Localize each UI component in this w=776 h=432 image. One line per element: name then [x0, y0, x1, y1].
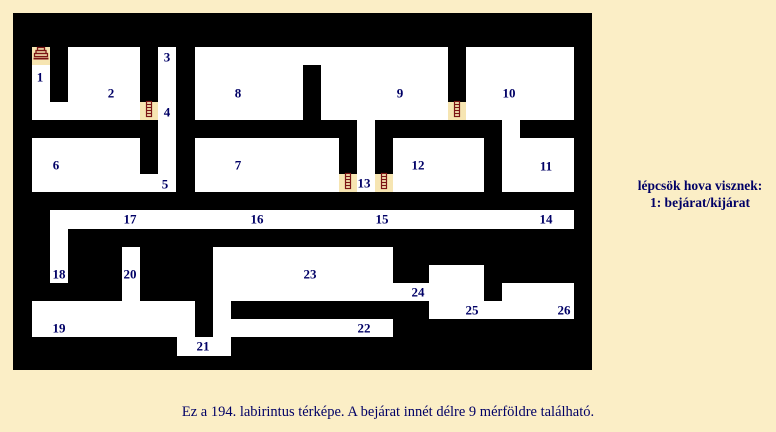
room-area [502, 138, 574, 192]
stair-cell [339, 174, 357, 192]
room-area [466, 47, 574, 120]
legend-title: lépcsök hova visznek: [600, 177, 776, 194]
room-area [393, 138, 484, 192]
room-number-label: 26 [558, 304, 571, 317]
room-number-label: 18 [53, 268, 66, 281]
stairs-legend: lépcsök hova visznek: 1: bejárat/kijárat [600, 177, 776, 211]
room-number-label: 12 [412, 159, 425, 172]
stair-cell [448, 102, 466, 120]
room-area [195, 138, 339, 192]
ladder-icon [140, 100, 158, 123]
room-number-label: 23 [304, 268, 317, 281]
legend-entry-1: 1: bejárat/kijárat [600, 194, 776, 211]
room-number-label: 10 [503, 87, 516, 100]
room-number-label: 4 [164, 106, 171, 119]
room-area [68, 47, 140, 102]
room-number-label: 11 [540, 160, 552, 173]
room-number-label: 24 [412, 286, 425, 299]
room-number-label: 13 [358, 177, 371, 190]
room-number-label: 7 [235, 159, 242, 172]
room-number-label: 6 [53, 159, 60, 172]
room-number-label: 21 [197, 340, 210, 353]
room-number-label: 5 [162, 178, 169, 191]
stair-cell [32, 47, 50, 65]
ladder-icon [339, 172, 357, 195]
room-number-label: 3 [164, 51, 171, 64]
ladder-icon [375, 172, 393, 195]
map-layer: 1234567891011121314151617181920212223242… [0, 0, 776, 432]
room-area [140, 174, 176, 192]
map-caption: Ez a 194. labirintus térképe. A bejárat … [0, 404, 776, 421]
room-number-label: 15 [376, 213, 389, 226]
room-area [195, 47, 448, 120]
wall-block [303, 65, 321, 120]
room-area [502, 120, 520, 138]
game-map-page: { "colors": { "page_bg": "#FBEEC6", "maz… [0, 0, 776, 432]
room-area [32, 138, 140, 192]
room-number-label: 19 [53, 322, 66, 335]
room-number-label: 14 [540, 213, 553, 226]
room-area [484, 301, 502, 319]
ladder-icon [448, 100, 466, 123]
room-area [158, 47, 176, 192]
room-area [213, 301, 231, 337]
room-number-label: 17 [124, 213, 137, 226]
room-number-label: 16 [251, 213, 264, 226]
stairs-icon [32, 45, 50, 68]
stair-cell [375, 174, 393, 192]
room-area [32, 102, 140, 120]
room-number-label: 1 [37, 71, 44, 84]
room-number-label: 9 [397, 87, 404, 100]
stair-cell [140, 102, 158, 120]
room-number-label: 22 [358, 322, 371, 335]
room-number-label: 8 [235, 87, 242, 100]
room-number-label: 20 [124, 268, 137, 281]
room-number-label: 25 [466, 304, 479, 317]
room-number-label: 2 [108, 87, 115, 100]
